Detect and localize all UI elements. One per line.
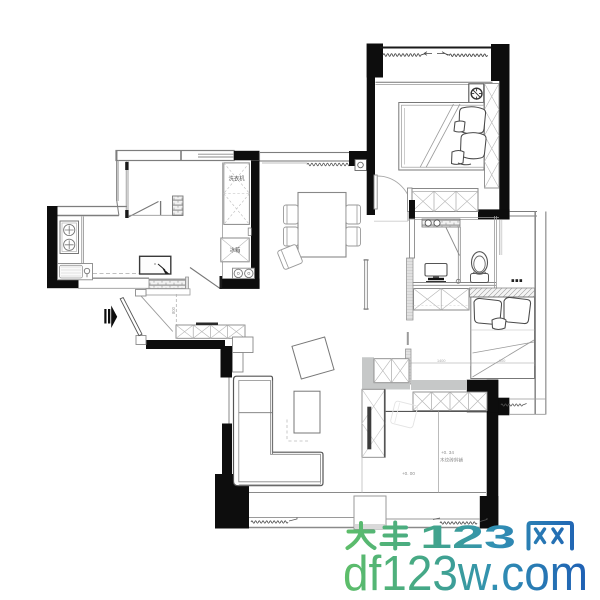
svg-text:800: 800 bbox=[171, 306, 176, 314]
svg-text:+0. 00: +0. 00 bbox=[402, 471, 415, 476]
svg-text:冰箱: 冰箱 bbox=[230, 246, 241, 254]
svg-text:木纹砖斜铺: 木纹砖斜铺 bbox=[440, 457, 463, 464]
svg-text:600: 600 bbox=[499, 359, 505, 363]
svg-text:df123w.com: df123w.com bbox=[343, 547, 588, 600]
svg-text:+0. 34: +0. 34 bbox=[441, 450, 454, 455]
svg-text:1400: 1400 bbox=[437, 359, 445, 363]
svg-text:洗衣机: 洗衣机 bbox=[229, 175, 246, 183]
